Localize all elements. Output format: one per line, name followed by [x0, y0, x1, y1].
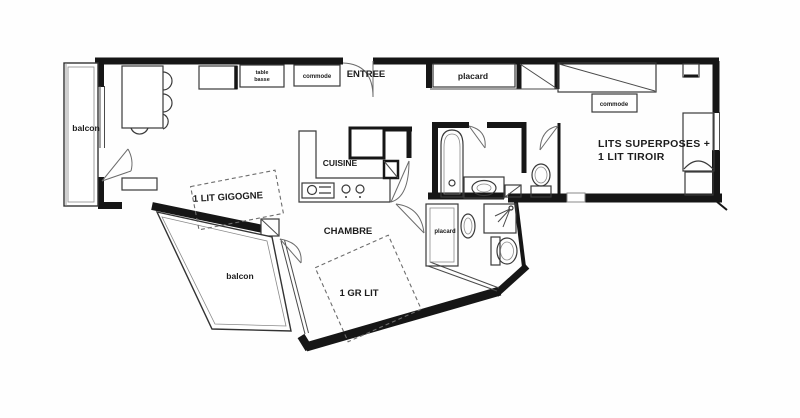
balcony-left-label: balcon	[72, 123, 99, 133]
hall-door	[396, 204, 424, 233]
sideboard	[199, 66, 237, 89]
stove-burners	[342, 185, 364, 198]
bathroom-doors	[469, 126, 558, 150]
bathtub	[441, 130, 463, 197]
bunk-beds-label-line2: 1 LIT TIROIR	[598, 151, 665, 163]
double-bed-label: 1 GR LIT	[339, 288, 378, 299]
floor-plan-drawing: balcon table basse commode ENTREE placar…	[0, 0, 800, 418]
coffee-table-box	[240, 65, 284, 87]
windows	[100, 86, 720, 334]
tv-bench	[122, 178, 157, 190]
kitchen-sink	[302, 183, 334, 198]
closet-mid-label: placard	[434, 229, 456, 235]
fridge	[350, 128, 384, 158]
bunk-beds-label-line1: LITS SUPERPOSES +	[598, 138, 710, 150]
right-bedroom	[433, 63, 714, 195]
kitchen-label: CUISINE	[323, 158, 358, 168]
floor-plan: balcon table basse commode ENTREE placar…	[0, 0, 800, 418]
coffee-table-label-line1: table	[256, 70, 269, 76]
small-sink	[461, 214, 475, 238]
balcony-door-swing	[102, 149, 132, 181]
corner-unit	[683, 64, 699, 77]
bunk-bed-top	[558, 63, 656, 92]
coffee-table-label-line2: basse	[254, 77, 270, 83]
bedroom-door-opening	[567, 193, 585, 202]
trundle-bed-label: 1 LIT GIGOGNE	[193, 190, 264, 205]
dining-table	[122, 66, 172, 134]
bedroom-label: CHAMBRE	[324, 226, 373, 237]
dresser-right-label: commode	[600, 102, 629, 108]
balcony-bottom-label: balcon	[226, 271, 253, 281]
shower-room	[426, 204, 517, 266]
closet-mid	[426, 204, 458, 266]
shower	[484, 204, 516, 233]
bathroom	[441, 126, 558, 198]
entrance-label: ENTREE	[347, 69, 386, 80]
toilet-bottom	[491, 237, 517, 265]
toilet-top	[531, 164, 551, 197]
balcony-left	[64, 63, 98, 206]
dresser-top-label: commode	[303, 74, 332, 80]
side-bed	[683, 113, 714, 195]
closet-top-label: placard	[458, 71, 488, 81]
